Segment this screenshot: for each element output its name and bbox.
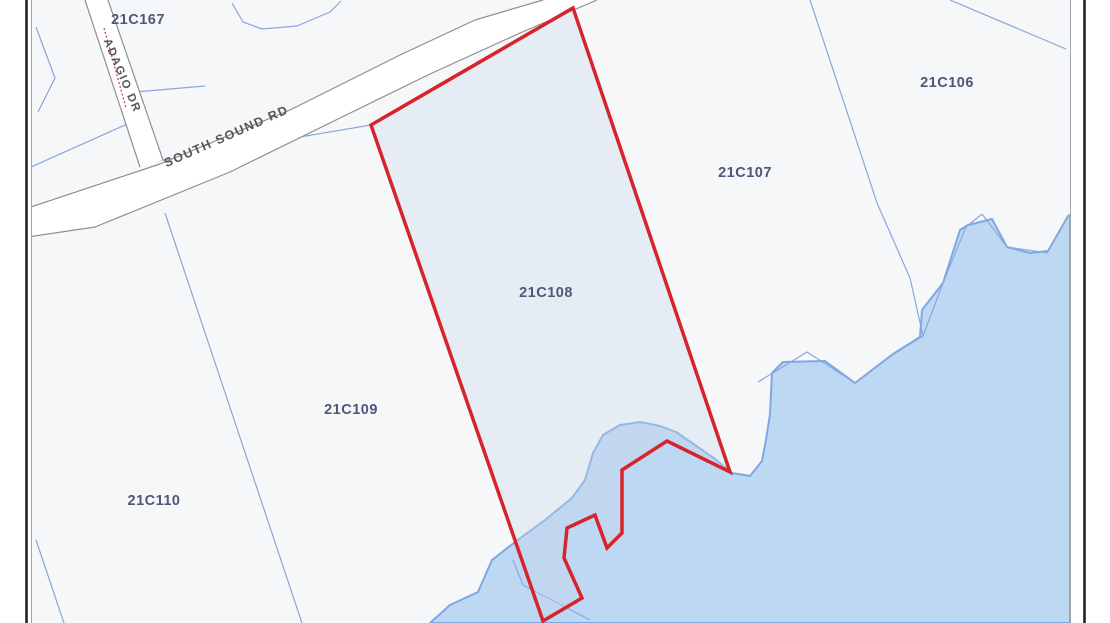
parcel-label-21C110: 21C110 bbox=[128, 493, 181, 509]
parcel-label-21C106: 21C106 bbox=[920, 75, 974, 91]
parcel-label-21C107: 21C107 bbox=[718, 165, 772, 181]
parcel-map-viewport[interactable]: SOUTH SOUND RDADAGIO DR21C16721C10621C10… bbox=[0, 0, 1110, 623]
map-canvas[interactable]: SOUTH SOUND RDADAGIO DR21C16721C10621C10… bbox=[0, 0, 1110, 623]
parcel-label-21C109: 21C109 bbox=[324, 402, 378, 418]
parcel-label-21C108: 21C108 bbox=[519, 285, 573, 301]
map-content-layer: SOUTH SOUND RDADAGIO DR21C16721C10621C10… bbox=[28, 0, 1070, 623]
parcel-label-21C167: 21C167 bbox=[111, 12, 165, 28]
